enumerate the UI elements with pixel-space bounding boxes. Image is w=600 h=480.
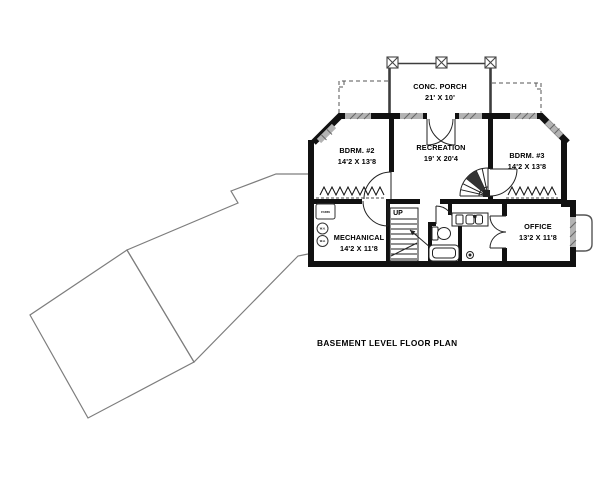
wall-bath-top-stub1 bbox=[432, 222, 436, 226]
door-arc-bdrm3 bbox=[490, 169, 517, 196]
footprint-outline-lower bbox=[30, 250, 194, 418]
wall-mid-3 bbox=[440, 199, 502, 204]
recreation-dims: 19' X 20'4 bbox=[424, 154, 459, 163]
faucet-icon bbox=[474, 215, 477, 218]
bdrm3-dims: 14'2 X 13'8 bbox=[508, 162, 546, 171]
french-door-arc bbox=[427, 119, 455, 145]
wall-bdrm3-right bbox=[561, 140, 567, 204]
closets bbox=[316, 187, 558, 198]
closet-rod-zigzag bbox=[320, 187, 384, 195]
sink-icon bbox=[466, 215, 474, 224]
wall-mid-2 bbox=[386, 199, 420, 204]
drawing-caption: BASEMENT LEVEL FLOOR PLAN bbox=[317, 338, 457, 348]
water-heater-label: W.H. bbox=[320, 227, 326, 231]
bdrm3-label: BDRM. #3 bbox=[509, 151, 544, 160]
deck-outline-left-notch bbox=[339, 81, 344, 87]
office-label: OFFICE bbox=[524, 222, 552, 231]
mechanical-dims: 14'2 X 11'8 bbox=[340, 244, 378, 253]
bdrm2-label: BDRM. #2 bbox=[339, 146, 374, 155]
water-heater-label: W.H. bbox=[320, 239, 326, 243]
window-symbol bbox=[570, 217, 576, 247]
footprint-outline-upper bbox=[127, 174, 308, 362]
floor-plan-page: CONC. PORCH 21' X 10' bbox=[0, 0, 600, 480]
porch-column-icon bbox=[436, 57, 447, 68]
window-well bbox=[576, 215, 592, 251]
footprint-outline bbox=[30, 174, 308, 418]
spiral-stair-icon bbox=[460, 168, 490, 197]
recreation-label: RECREATION bbox=[416, 143, 465, 152]
window-symbol bbox=[510, 113, 537, 119]
window-symbol bbox=[547, 122, 561, 136]
bathtub-icon bbox=[429, 245, 459, 261]
porch: CONC. PORCH 21' X 10' bbox=[387, 57, 496, 113]
window-symbol bbox=[400, 113, 423, 119]
porch-column-icon bbox=[485, 57, 496, 68]
closet-rod-zigzag bbox=[508, 187, 556, 195]
floor-drain-icon bbox=[467, 252, 474, 259]
deck-outline-left bbox=[339, 81, 388, 116]
deck-outline-right-notch bbox=[536, 83, 541, 89]
porch-label: CONC. PORCH bbox=[413, 82, 467, 91]
window-symbol bbox=[345, 113, 371, 119]
wall-bottom bbox=[308, 261, 576, 267]
appliance-icon bbox=[456, 215, 463, 224]
furnace-label: FURN bbox=[321, 210, 330, 214]
mechanical-label: MECHANICAL bbox=[334, 233, 385, 242]
up-label: UP bbox=[393, 210, 403, 217]
wall-office-top bbox=[502, 199, 561, 204]
window-symbol bbox=[459, 113, 482, 119]
floor-plan-drawing: CONC. PORCH 21' X 10' bbox=[0, 0, 600, 480]
porch-dims: 21' X 10' bbox=[425, 93, 455, 102]
sink-counter bbox=[452, 213, 488, 226]
toilet-icon bbox=[432, 227, 451, 240]
wall-mid-1 bbox=[310, 199, 362, 204]
bdrm2-dims: 14'2 X 13'8 bbox=[338, 157, 376, 166]
porch-column-icon bbox=[387, 57, 398, 68]
office-dims: 13'2 X 11'8 bbox=[519, 233, 557, 242]
